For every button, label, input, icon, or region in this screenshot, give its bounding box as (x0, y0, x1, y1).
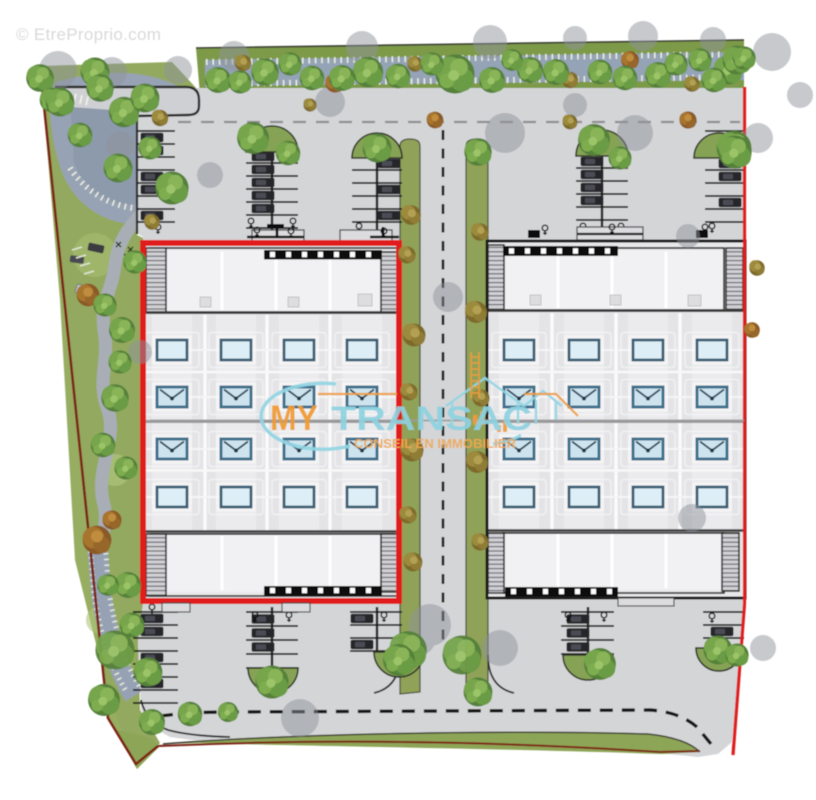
svg-text:© EtreProprio.com: © EtreProprio.com (16, 25, 161, 44)
svg-text:CONSEIL EN IMMOBILIER: CONSEIL EN IMMOBILIER (354, 437, 516, 451)
svg-text:TRANSAC: TRANSAC (331, 400, 532, 438)
svg-text:MY: MY (270, 399, 318, 438)
